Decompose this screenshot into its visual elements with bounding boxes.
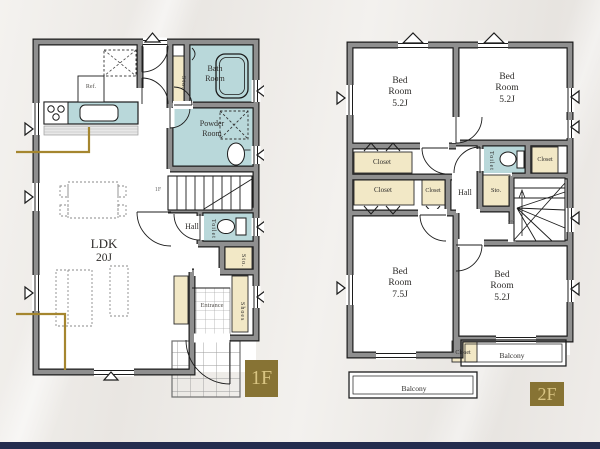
floor1-badge: 1F	[245, 360, 278, 397]
floor1-plan	[24, 30, 264, 402]
sto2-label: Sto.	[483, 187, 509, 195]
floorplan-page: Bath Room Powder Room Sto. LDK 20J Hall …	[0, 0, 600, 449]
stairs	[168, 176, 252, 210]
fridge-label: Ref.	[78, 84, 104, 91]
bedroom1-label: Bed Room 5.2J	[382, 76, 418, 110]
bedroom3-name: Bed Room	[382, 267, 418, 290]
hall1-label: Hall	[176, 222, 208, 232]
sto-lower-label: Sto.	[232, 248, 246, 274]
bedroom1-name: Bed Room	[382, 76, 418, 99]
ldk-size: 20J	[84, 252, 124, 266]
bedroom4-size: 5.2J	[484, 293, 520, 304]
bedroom1-size: 5.2J	[382, 99, 418, 110]
bath-room-label: Bath Room	[199, 64, 231, 83]
bedroom2-size: 5.2J	[489, 95, 525, 106]
hall2-label: Hall	[449, 188, 481, 198]
closet-label: Closet	[357, 158, 407, 166]
balcony-right-label: Balcony	[486, 351, 538, 360]
stair2-note: 2F	[503, 220, 519, 227]
bedroom2-label: Bed Room 5.2J	[489, 72, 525, 106]
closet-label: Closet	[358, 186, 408, 194]
floor2-badge: 2F	[530, 382, 564, 406]
bedroom4-name: Bed Room	[484, 270, 520, 293]
sto-upper-label: Sto.	[174, 62, 186, 104]
ldk-label: LDK 20J	[84, 236, 124, 265]
shoes-label: Shoes	[235, 292, 245, 332]
stairs	[514, 178, 565, 241]
toilet2-label: Toilet	[484, 146, 494, 176]
bedroom2-name: Bed Room	[489, 72, 525, 95]
bedroom4-label: Bed Room 5.2J	[484, 270, 520, 304]
bottom-bar	[0, 442, 600, 449]
closet-label: Closet	[531, 157, 559, 164]
stair1-note: 1F	[150, 187, 166, 194]
ldk-name: LDK	[84, 236, 124, 252]
closet-label: Closet	[419, 188, 447, 195]
closet-label: Closet	[449, 350, 477, 357]
entrance-label: Entrance	[197, 302, 227, 310]
bedroom3-label: Bed Room 7.5J	[382, 267, 418, 301]
kitchen-sink-icon	[80, 105, 118, 121]
stove-icon	[44, 102, 68, 124]
powder-room-label: Powder Room	[194, 119, 230, 138]
hall-storage-box	[174, 276, 188, 324]
toilet1-label: Toilet	[206, 214, 216, 244]
balcony-bottom-label: Balcony	[388, 384, 440, 393]
bedroom3-size: 7.5J	[382, 290, 418, 301]
